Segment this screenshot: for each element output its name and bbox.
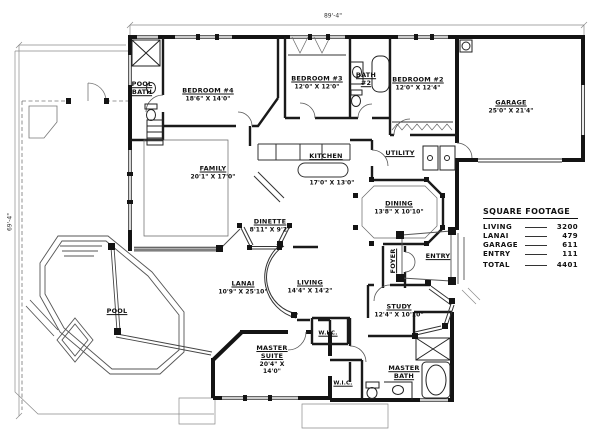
room-label-study: STUDY 12'4" X 10'10" [374, 304, 423, 319]
room-label-bedroom4: BEDROOM #4 18'6" X 14'0" [182, 88, 234, 103]
sqft-row-lanai: LANAI 479 [483, 232, 578, 241]
room-label-wic-2: W.I.C. [333, 381, 352, 388]
room-label-bedroom3: BEDROOM #3 12'0" X 12'0" [291, 76, 343, 91]
floor-plan: 89'-4" 69'-4" POOL BATH BEDROOM #4 18'6"… [0, 0, 600, 443]
sqft-row-entry: ENTRY 111 [483, 250, 578, 259]
room-label-master-suite: MASTER SUITE 20'4" X 14'0" [251, 345, 293, 375]
sqft-label: TOTAL [483, 261, 525, 270]
leader-line [525, 236, 547, 237]
sqft-row-total: TOTAL 4401 [483, 261, 578, 270]
overall-height-dimension: 69'-4" [7, 213, 14, 231]
room-label-dinette: DINETTE 8'11" X 9'2" [250, 219, 291, 234]
square-footage-table: SQUARE FOOTAGE LIVING 3200 LANAI 479 GAR… [483, 207, 578, 270]
sqft-value: 611 [549, 241, 578, 250]
sqft-value: 111 [549, 250, 578, 259]
sqft-row-living: LIVING 3200 [483, 223, 578, 232]
sqft-value: 479 [549, 232, 578, 241]
sqft-label: ENTRY [483, 250, 525, 259]
room-label-bedroom2: BEDROOM #2 12'0" X 12'4" [392, 77, 444, 92]
room-label-dining: DINING 13'8" X 10'10" [374, 201, 423, 216]
room-label-pool: POOL [107, 308, 128, 316]
room-label-garage: GARAGE 25'0" X 21'4" [488, 100, 533, 115]
room-label-foyer: FOYER [390, 249, 398, 274]
room-dims-kitchen: 17'0" X 13'0" [309, 179, 354, 186]
square-footage-title: SQUARE FOOTAGE [483, 207, 578, 219]
room-label-pool-bath: POOL BATH [127, 81, 157, 97]
room-label-entry: ENTRY [426, 253, 451, 261]
room-label-family: FAMILY 20'1" X 17'0" [190, 166, 235, 181]
room-label-lanai: LANAI 10'9" X 25'10" [218, 281, 267, 296]
sqft-label: GARAGE [483, 241, 525, 250]
room-label-kitchen: KITCHEN [309, 153, 342, 161]
sqft-value: 3200 [549, 223, 578, 232]
sqft-label: LANAI [483, 232, 525, 241]
room-label-master-bath: MASTER BATH [386, 365, 422, 381]
leader-line [525, 245, 547, 246]
sqft-row-garage: GARAGE 611 [483, 241, 578, 250]
leader-line [525, 254, 547, 255]
pool-outline [26, 236, 184, 374]
leader-line [525, 265, 547, 266]
sqft-label: LIVING [483, 223, 525, 232]
leader-line [525, 227, 547, 228]
room-label-living: LIVING 14'4" X 14'2" [287, 280, 332, 295]
sqft-value: 4401 [549, 261, 578, 270]
room-label-wic-1: W.I.C. [318, 331, 337, 338]
room-label-utility: UTILITY [385, 150, 414, 158]
room-label-bath2: BATH #2 [353, 72, 379, 88]
overall-width-dimension: 89'-4" [324, 13, 342, 20]
